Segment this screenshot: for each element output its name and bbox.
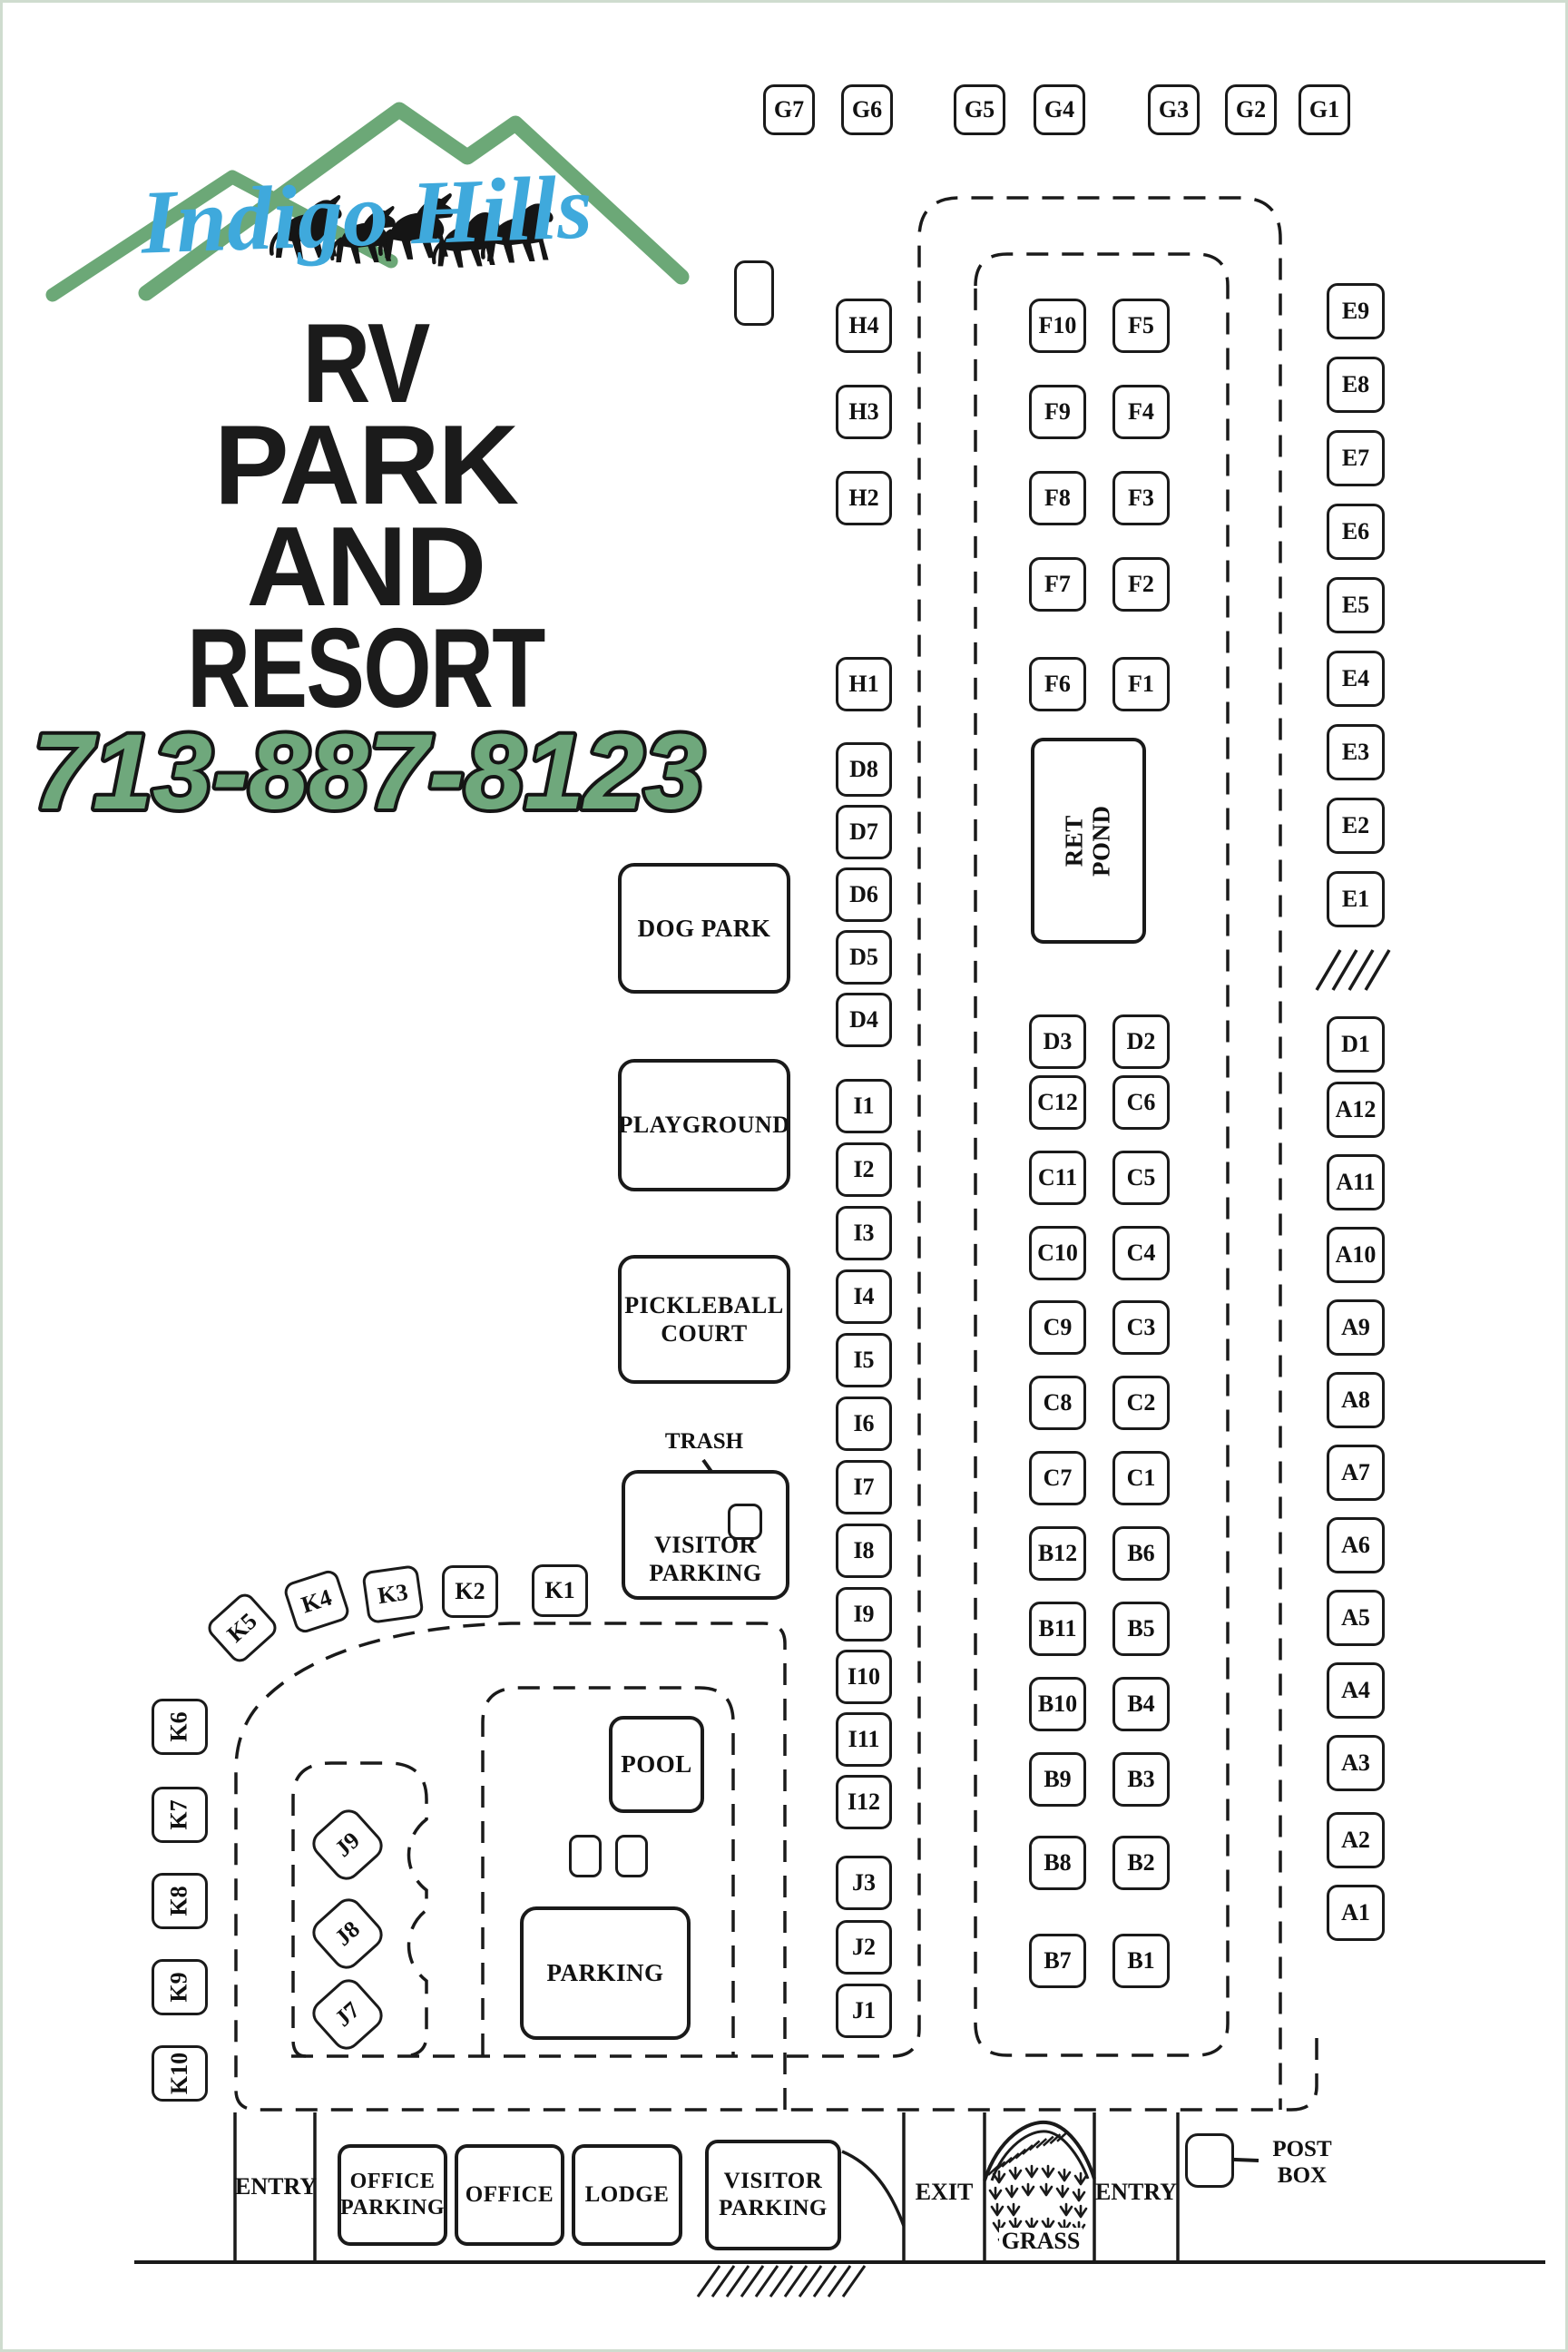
site-label: C3	[1127, 1314, 1156, 1341]
site-label: B11	[1039, 1615, 1077, 1642]
site-label: I12	[848, 1788, 880, 1816]
site-b6: B6	[1112, 1526, 1170, 1581]
site-label: B12	[1038, 1540, 1077, 1567]
site-h2: H2	[836, 471, 892, 525]
site-i12: I12	[836, 1775, 892, 1829]
site-e7: E7	[1327, 430, 1385, 486]
site-h3: H3	[836, 385, 892, 439]
site-a11: A11	[1327, 1154, 1385, 1210]
playground-area: PLAYGROUND	[618, 1059, 790, 1191]
site-label: I7	[853, 1474, 874, 1501]
site-j2: J2	[836, 1920, 892, 1975]
site-label: B10	[1038, 1690, 1077, 1718]
site-label: A1	[1341, 1899, 1370, 1926]
site-c2: C2	[1112, 1376, 1170, 1430]
site-label: B1	[1127, 1947, 1154, 1975]
site-g6: G6	[841, 84, 893, 135]
site-b12: B12	[1029, 1526, 1086, 1581]
site-label: D7	[849, 818, 878, 846]
site-a7: A7	[1327, 1445, 1385, 1501]
site-label: K9	[166, 1972, 193, 2002]
parking-area: PARKING	[520, 1906, 691, 2040]
site-b5: B5	[1112, 1602, 1170, 1656]
site-label: D5	[849, 944, 878, 971]
exit-label: EXIT	[904, 2179, 985, 2206]
site-label: K7	[166, 1799, 193, 1829]
site-label: H2	[848, 485, 878, 512]
site-label: A4	[1341, 1677, 1370, 1704]
site-label: B5	[1127, 1615, 1154, 1642]
site-label: A12	[1336, 1096, 1377, 1123]
entry-left-label: ENTRY	[235, 2173, 315, 2200]
site-label: C10	[1037, 1240, 1078, 1267]
site-label: A5	[1341, 1604, 1370, 1632]
retention-pond: RET POND	[1031, 738, 1146, 944]
site-c3: C3	[1112, 1300, 1170, 1355]
site-g2: G2	[1225, 84, 1277, 135]
site-label: C4	[1127, 1240, 1156, 1267]
site-label: F5	[1128, 312, 1154, 339]
site-label: E3	[1342, 739, 1369, 766]
site-label: F1	[1128, 671, 1154, 698]
dog-park-area: DOG PARK	[618, 863, 790, 994]
site-a3: A3	[1327, 1735, 1385, 1791]
site-label: F3	[1128, 485, 1154, 512]
site-a12: A12	[1327, 1082, 1385, 1138]
site-label: I10	[848, 1663, 880, 1690]
site-f9: F9	[1029, 385, 1086, 439]
unlabeled-site-box	[734, 260, 774, 326]
site-label: E8	[1342, 371, 1369, 398]
site-label: A10	[1336, 1241, 1377, 1269]
site-label: G3	[1159, 96, 1189, 123]
site-i8: I8	[836, 1524, 892, 1578]
post-box	[1185, 2133, 1234, 2188]
site-i9: I9	[836, 1587, 892, 1641]
site-label: K3	[376, 1579, 409, 1610]
trash-label: TRASH	[654, 1429, 754, 1455]
site-label: G6	[852, 96, 882, 123]
site-label: C7	[1044, 1465, 1073, 1492]
park-map: Indigo Hills RV PARK AND RESORT 713-887-…	[0, 0, 1568, 2352]
site-c6: C6	[1112, 1075, 1170, 1130]
site-c1: C1	[1112, 1451, 1170, 1505]
site-a6: A6	[1327, 1517, 1385, 1573]
site-b11: B11	[1029, 1602, 1086, 1656]
site-d8: D8	[836, 742, 892, 797]
site-g3: G3	[1148, 84, 1200, 135]
site-c7: C7	[1029, 1451, 1086, 1505]
site-label: D8	[849, 756, 878, 783]
site-label: C1	[1127, 1465, 1156, 1492]
pickleball-court-area: PICKLEBALL COURT	[618, 1255, 790, 1384]
site-label: E5	[1342, 592, 1369, 619]
site-label: B6	[1127, 1540, 1154, 1567]
exit-approach-curve	[842, 2151, 904, 2226]
grass-mound	[985, 2122, 1094, 2180]
site-label: A2	[1341, 1827, 1370, 1854]
site-label: A3	[1341, 1749, 1370, 1777]
hatch-e-column	[1317, 950, 1389, 990]
site-label: F10	[1039, 312, 1077, 339]
site-f1: F1	[1112, 657, 1170, 711]
pool-area: POOL	[609, 1716, 704, 1813]
site-label: F8	[1044, 485, 1071, 512]
site-k7: K7	[152, 1787, 208, 1843]
site-label: I8	[853, 1537, 874, 1564]
site-label: K2	[455, 1578, 485, 1605]
site-label: E2	[1342, 812, 1369, 839]
site-label: A9	[1341, 1314, 1370, 1341]
site-label: C2	[1127, 1389, 1156, 1416]
site-label: F9	[1044, 398, 1071, 426]
site-label: F7	[1044, 571, 1071, 598]
site-label: J1	[852, 1997, 876, 2024]
site-label: C12	[1037, 1089, 1078, 1116]
site-d7: D7	[836, 805, 892, 859]
site-k10: K10	[152, 2045, 208, 2102]
site-e2: E2	[1327, 798, 1385, 854]
site-b8: B8	[1029, 1836, 1086, 1890]
site-label: E9	[1342, 298, 1369, 325]
site-i2: I2	[836, 1142, 892, 1197]
site-label: G1	[1309, 96, 1339, 123]
site-label: J2	[852, 1934, 876, 1961]
site-i4: I4	[836, 1269, 892, 1324]
site-f2: F2	[1112, 557, 1170, 612]
site-label: D2	[1127, 1028, 1156, 1055]
trash-bin-box	[728, 1504, 762, 1540]
site-label: J8	[329, 1916, 365, 1952]
site-label: E7	[1342, 445, 1369, 472]
site-label: D3	[1044, 1028, 1073, 1055]
site-label: J9	[329, 1827, 365, 1863]
entry-right-label: ENTRY	[1094, 2179, 1178, 2206]
site-j1: J1	[836, 1984, 892, 2038]
site-i6: I6	[836, 1396, 892, 1451]
site-e4: E4	[1327, 651, 1385, 707]
site-k2: K2	[442, 1565, 498, 1618]
site-a8: A8	[1327, 1372, 1385, 1428]
site-g7: G7	[763, 84, 815, 135]
site-f7: F7	[1029, 557, 1086, 612]
visitor-parking-upper-area: VISITOR PARKING	[622, 1470, 789, 1600]
site-j3: J3	[836, 1856, 892, 1910]
site-label: C8	[1044, 1389, 1073, 1416]
site-label: I5	[853, 1347, 874, 1374]
site-d5: D5	[836, 930, 892, 985]
site-label: B2	[1127, 1849, 1154, 1877]
site-label: I6	[853, 1410, 874, 1437]
site-h4: H4	[836, 299, 892, 353]
site-e8: E8	[1327, 357, 1385, 413]
retention-pond-label: RET POND	[1062, 805, 1115, 877]
site-i11: I11	[836, 1712, 892, 1767]
site-label: K1	[544, 1577, 574, 1604]
site-c10: C10	[1029, 1226, 1086, 1280]
site-c4: C4	[1112, 1226, 1170, 1280]
site-c9: C9	[1029, 1300, 1086, 1355]
site-c8: C8	[1029, 1376, 1086, 1430]
site-label: F2	[1128, 571, 1154, 598]
site-label: E1	[1342, 886, 1369, 913]
site-label: E4	[1342, 665, 1369, 692]
site-label: F4	[1128, 398, 1154, 426]
site-i3: I3	[836, 1206, 892, 1260]
site-label: D6	[849, 881, 878, 908]
site-i1: I1	[836, 1079, 892, 1133]
site-k1: K1	[532, 1564, 588, 1617]
site-f6: F6	[1029, 657, 1086, 711]
site-b2: B2	[1112, 1836, 1170, 1890]
site-d4: D4	[836, 993, 892, 1047]
site-label: A11	[1336, 1169, 1375, 1196]
phone-number-art: 713-887-8123	[3, 701, 747, 838]
site-b7: B7	[1029, 1934, 1086, 1988]
site-e1: E1	[1327, 871, 1385, 927]
phone-number: 713-887-8123	[33, 712, 704, 832]
site-a4: A4	[1327, 1662, 1385, 1719]
site-b4: B4	[1112, 1677, 1170, 1731]
site-i10: I10	[836, 1650, 892, 1704]
site-k3: K3	[361, 1564, 424, 1624]
site-i7: I7	[836, 1460, 892, 1514]
site-label: H3	[848, 398, 878, 426]
office-area: OFFICE	[455, 2144, 564, 2246]
site-b10: B10	[1029, 1677, 1086, 1731]
site-label: C5	[1127, 1164, 1156, 1191]
site-label: A7	[1341, 1459, 1370, 1486]
site-a1: A1	[1327, 1885, 1385, 1941]
site-label: I2	[853, 1156, 874, 1183]
site-label: C11	[1038, 1164, 1077, 1191]
lodge-area: LODGE	[572, 2144, 682, 2246]
site-f8: F8	[1029, 471, 1086, 525]
site-label: I3	[853, 1220, 874, 1247]
site-g5: G5	[954, 84, 1005, 135]
site-f4: F4	[1112, 385, 1170, 439]
site-k9: K9	[152, 1959, 208, 2015]
site-a9: A9	[1327, 1299, 1385, 1356]
site-label: H1	[848, 671, 878, 698]
site-label: G4	[1044, 96, 1074, 123]
site-f10: F10	[1029, 299, 1086, 353]
site-i5: I5	[836, 1333, 892, 1387]
site-label: I4	[853, 1283, 874, 1310]
site-label: K8	[166, 1886, 193, 1916]
site-label: B8	[1044, 1849, 1071, 1877]
site-label: K5	[222, 1608, 263, 1649]
site-label: C9	[1044, 1314, 1073, 1341]
grass-label: GRASS	[987, 2200, 1094, 2255]
site-label: A6	[1341, 1532, 1370, 1559]
site-c5: C5	[1112, 1151, 1170, 1205]
site-label: G7	[774, 96, 804, 123]
site-d1: D1	[1327, 1016, 1385, 1073]
site-c11: C11	[1029, 1151, 1086, 1205]
site-e6: E6	[1327, 504, 1385, 560]
office-parking-area: OFFICE PARKING	[338, 2144, 447, 2246]
site-b3: B3	[1112, 1752, 1170, 1807]
site-a2: A2	[1327, 1812, 1385, 1868]
site-k6: K6	[152, 1699, 208, 1755]
visitor-parking-lower-area: VISITOR PARKING	[705, 2140, 841, 2250]
site-d6: D6	[836, 867, 892, 922]
site-label: I11	[848, 1726, 880, 1753]
site-g1: G1	[1298, 84, 1350, 135]
site-label: B3	[1127, 1766, 1154, 1793]
site-label: I1	[853, 1093, 874, 1120]
site-a5: A5	[1327, 1590, 1385, 1646]
site-f3: F3	[1112, 471, 1170, 525]
site-k8: K8	[152, 1873, 208, 1929]
site-e3: E3	[1327, 724, 1385, 780]
site-b9: B9	[1029, 1752, 1086, 1807]
site-label: K6	[166, 1711, 193, 1741]
post-box-label: POST BOX	[1260, 2137, 1344, 2190]
site-label: E6	[1342, 518, 1369, 545]
site-b1: B1	[1112, 1934, 1170, 1988]
site-label: A8	[1341, 1387, 1370, 1414]
site-label: B9	[1044, 1766, 1071, 1793]
site-label: C6	[1127, 1089, 1156, 1116]
site-h1: H1	[836, 657, 892, 711]
site-d2: D2	[1112, 1014, 1170, 1069]
site-label: D1	[1341, 1031, 1370, 1058]
site-label: B7	[1044, 1947, 1071, 1975]
site-label: G5	[965, 96, 995, 123]
site-label: I9	[853, 1601, 874, 1628]
site-f5: F5	[1112, 299, 1170, 353]
site-label: H4	[848, 312, 878, 339]
pool-building-2	[615, 1835, 648, 1877]
site-label: D4	[849, 1006, 878, 1034]
site-d3: D3	[1029, 1014, 1086, 1069]
site-label: J7	[329, 1996, 365, 2033]
site-label: G2	[1236, 96, 1266, 123]
site-e5: E5	[1327, 577, 1385, 633]
site-c12: C12	[1029, 1075, 1086, 1130]
site-g4: G4	[1034, 84, 1085, 135]
road-inner-rect	[975, 254, 1228, 2055]
site-a10: A10	[1327, 1227, 1385, 1283]
site-label: K4	[299, 1584, 336, 1620]
site-label: B4	[1127, 1690, 1154, 1718]
site-label: F6	[1044, 671, 1071, 698]
hatch-visitor-parking	[698, 2266, 865, 2297]
site-e9: E9	[1327, 283, 1385, 339]
site-label: K10	[166, 2053, 193, 2094]
pool-building-1	[569, 1835, 602, 1877]
site-label: J3	[852, 1869, 876, 1896]
